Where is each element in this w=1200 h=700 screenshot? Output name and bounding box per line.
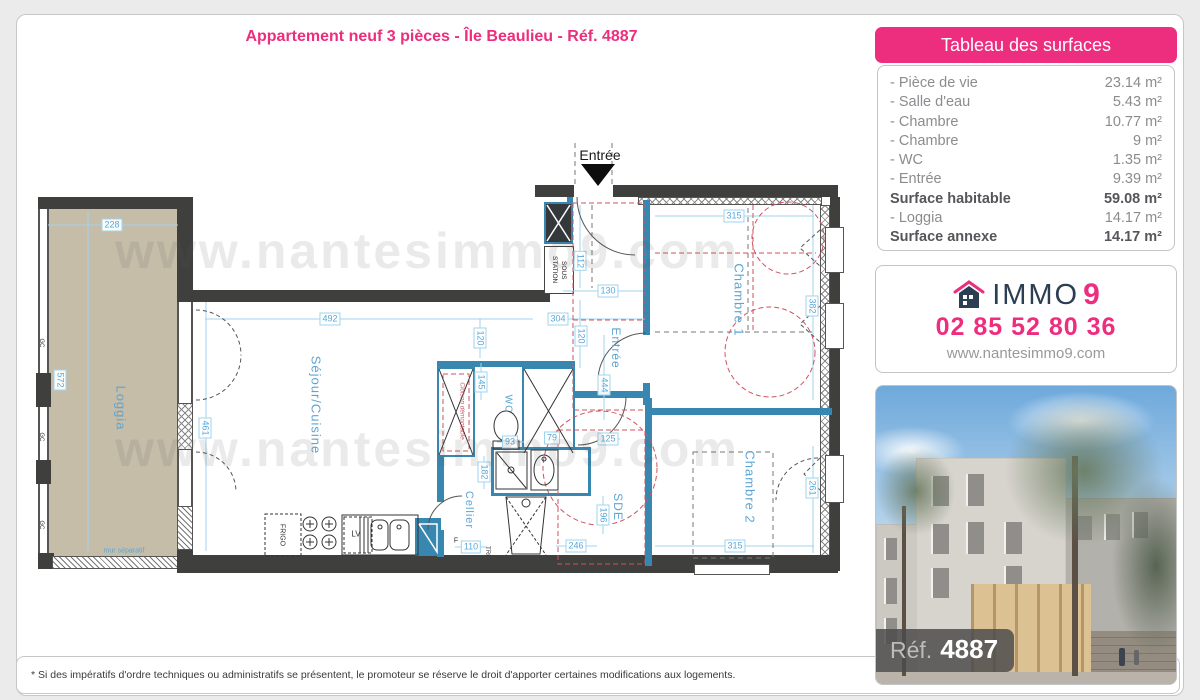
dimension-label: 93 — [502, 436, 518, 449]
surface-row-value: 14.17 m² — [1105, 209, 1162, 228]
dimension-label: 382 — [806, 295, 819, 316]
entrance-arrow-icon — [581, 164, 615, 186]
dimension-label: 145 — [475, 371, 488, 392]
entrance-label: Entrée — [572, 147, 628, 163]
room-label: Cellier — [463, 491, 475, 529]
surface-row-label: - Chambre — [890, 113, 959, 132]
building-photo: Réf.4887 — [875, 385, 1177, 685]
dimension-label: 120 — [575, 325, 588, 346]
surface-row-value: 5.43 m² — [1113, 93, 1162, 112]
house-icon — [952, 279, 988, 311]
plan-note: Cloison démontable — [459, 382, 466, 439]
reference-badge: Réf.4887 — [876, 629, 1014, 672]
plan-note: LV — [351, 530, 360, 539]
surface-row: - Loggia14.17 m² — [890, 209, 1162, 228]
dimension-label: 315 — [724, 540, 745, 553]
surface-row: - Entrée9.39 m² — [890, 170, 1162, 189]
agency-phone[interactable]: 02 85 52 80 36 — [876, 313, 1176, 342]
surface-row-value: 59.08 m² — [1104, 190, 1162, 209]
person — [1119, 648, 1125, 666]
surface-row: - Chambre10.77 m² — [890, 113, 1162, 132]
brand-9: 9 — [1083, 278, 1100, 312]
agency-card: IMMO9 02 85 52 80 36 www.nantesimmo9.com — [875, 265, 1177, 373]
dimension-label: 315 — [723, 210, 744, 223]
surface-row: - Pièce de vie23.14 m² — [890, 74, 1162, 93]
dimension-label: 461 — [199, 417, 212, 438]
reference-label: Réf. — [890, 637, 932, 663]
tree-foliage — [1111, 476, 1177, 656]
room-label: Entrée — [609, 327, 623, 368]
plan-note: FRIGO — [279, 524, 286, 546]
dimension-label: 246 — [565, 540, 586, 553]
tree-foliage — [876, 446, 956, 536]
plan-note: GC — [38, 339, 44, 348]
dimension-label: 228 — [101, 219, 122, 232]
surface-row-label: - Chambre — [890, 132, 959, 151]
street — [876, 672, 1177, 685]
dimension-label: 120 — [474, 327, 487, 348]
plan-note: F — [454, 538, 458, 545]
room-label: Loggia — [114, 385, 129, 430]
surface-row-label: - WC — [890, 151, 923, 170]
dimension-label: 444 — [598, 374, 611, 395]
surface-row-value: 14.17 m² — [1104, 228, 1162, 247]
room-label: Chambre 2 — [743, 450, 758, 523]
agency-logo: IMMO9 — [876, 278, 1176, 312]
dimension-label: 125 — [597, 433, 618, 446]
dimension-label: 112 — [574, 251, 587, 271]
surface-row: - Chambre9 m² — [890, 132, 1162, 151]
dimension-label: 572 — [54, 369, 67, 390]
plan-note: TRI — [484, 546, 490, 556]
page: * Si des impératifs d'ordre techniques o… — [0, 0, 1200, 700]
dimension-label: 196 — [597, 504, 610, 525]
plan-note: GC — [38, 433, 44, 442]
dimension-label: 182 — [478, 461, 491, 482]
surface-row-label: - Pièce de vie — [890, 74, 978, 93]
person — [1134, 650, 1139, 665]
page-title: Appartement neuf 3 pièces - Île Beaulieu… — [17, 28, 866, 46]
surface-row-label: Surface habitable — [890, 190, 1011, 209]
surface-row: Surface habitable59.08 m² — [890, 190, 1162, 209]
room-label: Chambre 1 — [732, 263, 747, 336]
plan-note: mur séparatif — [104, 548, 145, 555]
surface-row-value: 1.35 m² — [1113, 151, 1162, 170]
surface-row: Surface annexe14.17 m² — [890, 228, 1162, 247]
reference-number: 4887 — [940, 634, 998, 664]
surface-row-value: 10.77 m² — [1105, 113, 1162, 132]
room-label: WC — [503, 395, 514, 414]
surface-row-label: Surface annexe — [890, 228, 997, 247]
dimension-label: 110 — [461, 541, 481, 554]
dimension-label: 130 — [597, 285, 618, 298]
room-label: SDE — [611, 493, 625, 521]
agency-website[interactable]: www.nantesimmo9.com — [876, 345, 1176, 362]
surface-row-value: 9 m² — [1133, 132, 1162, 151]
surfaces-table: - Pièce de vie23.14 m²- Salle d'eau5.43 … — [877, 65, 1175, 251]
surface-row-label: - Salle d'eau — [890, 93, 970, 112]
surface-row-label: - Loggia — [890, 209, 942, 228]
dimension-label: 79 — [544, 432, 560, 445]
dimension-label: 261 — [806, 477, 819, 498]
surface-row-value: 9.39 m² — [1113, 170, 1162, 189]
surface-row-value: 23.14 m² — [1105, 74, 1162, 93]
room-label: Séjour/Cuisine — [309, 356, 324, 455]
plan-note: GC — [38, 521, 44, 530]
surfaces-table-header: Tableau des surfaces — [875, 27, 1177, 63]
surface-row: - Salle d'eau5.43 m² — [890, 93, 1162, 112]
surface-row-label: - Entrée — [890, 170, 942, 189]
brand-immo: IMMO — [992, 279, 1079, 312]
dimension-label: 304 — [547, 313, 568, 326]
surface-row: - WC1.35 m² — [890, 151, 1162, 170]
dimension-label: 492 — [319, 313, 340, 326]
